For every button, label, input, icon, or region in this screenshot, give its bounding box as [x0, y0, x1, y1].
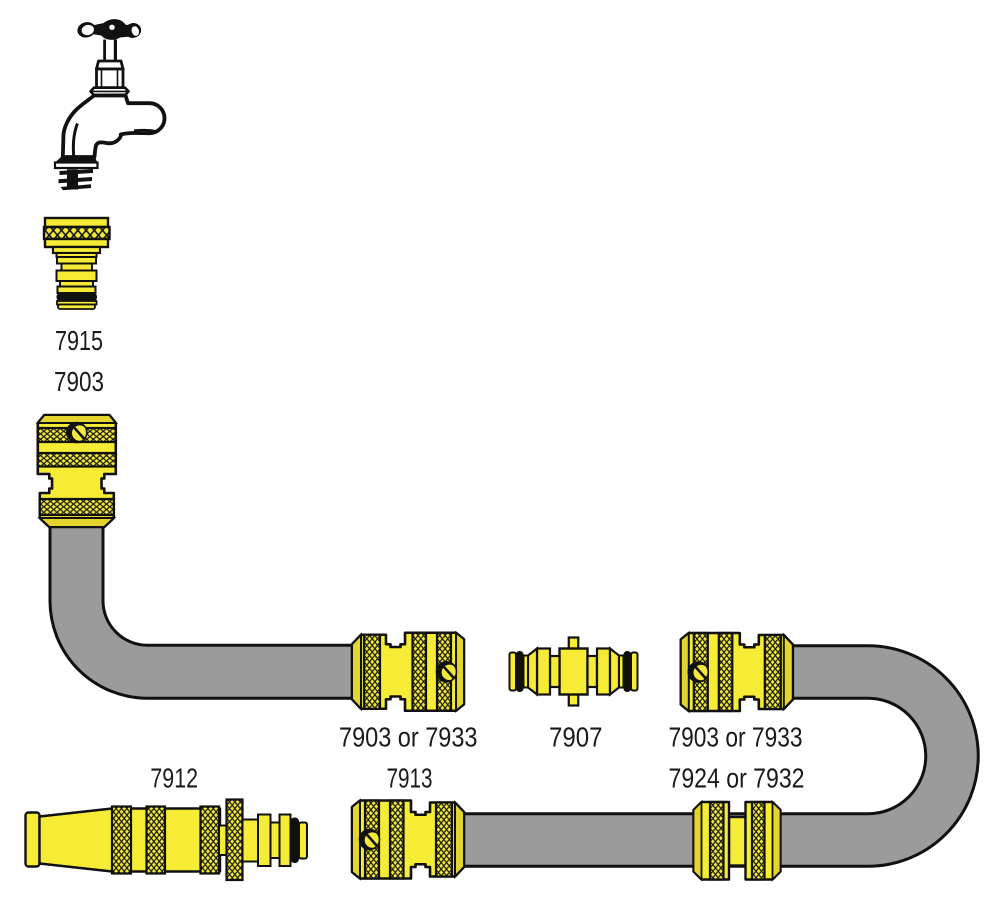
svg-text:7913: 7913	[387, 763, 433, 794]
svg-text:7912: 7912	[150, 763, 198, 794]
svg-text:7924 or 7932: 7924 or 7932	[669, 763, 805, 794]
svg-text:7903 or 7933: 7903 or 7933	[669, 722, 803, 753]
svg-text:7907: 7907	[549, 722, 603, 753]
svg-text:7903: 7903	[54, 366, 104, 397]
svg-text:7903 or 7933: 7903 or 7933	[339, 722, 478, 753]
svg-text:7915: 7915	[55, 325, 103, 356]
